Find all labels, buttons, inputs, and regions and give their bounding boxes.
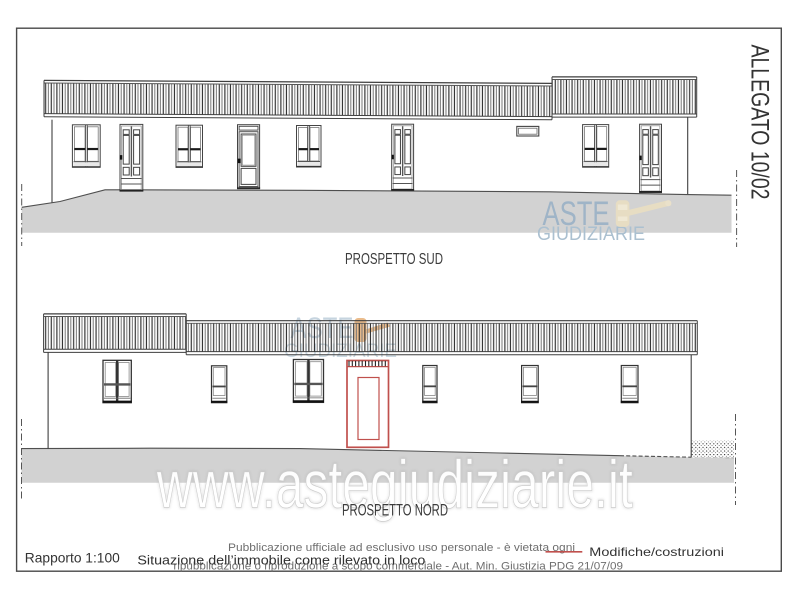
svg-text:ALLEGATO 10/02: ALLEGATO 10/02 <box>746 45 774 200</box>
svg-text:Rapporto 1:100: Rapporto 1:100 <box>25 550 120 566</box>
svg-text:GIUDIZIARIE: GIUDIZIARIE <box>537 223 645 245</box>
svg-text:PROSPETTO NORD: PROSPETTO NORD <box>342 502 448 520</box>
svg-text:PROSPETTO SUD: PROSPETTO SUD <box>345 251 443 268</box>
svg-text:Situazione dell’immobile come: Situazione dell’immobile come rilevato i… <box>137 552 425 567</box>
svg-text:Modifiche/costruzioni: Modifiche/costruzioni <box>589 545 724 559</box>
